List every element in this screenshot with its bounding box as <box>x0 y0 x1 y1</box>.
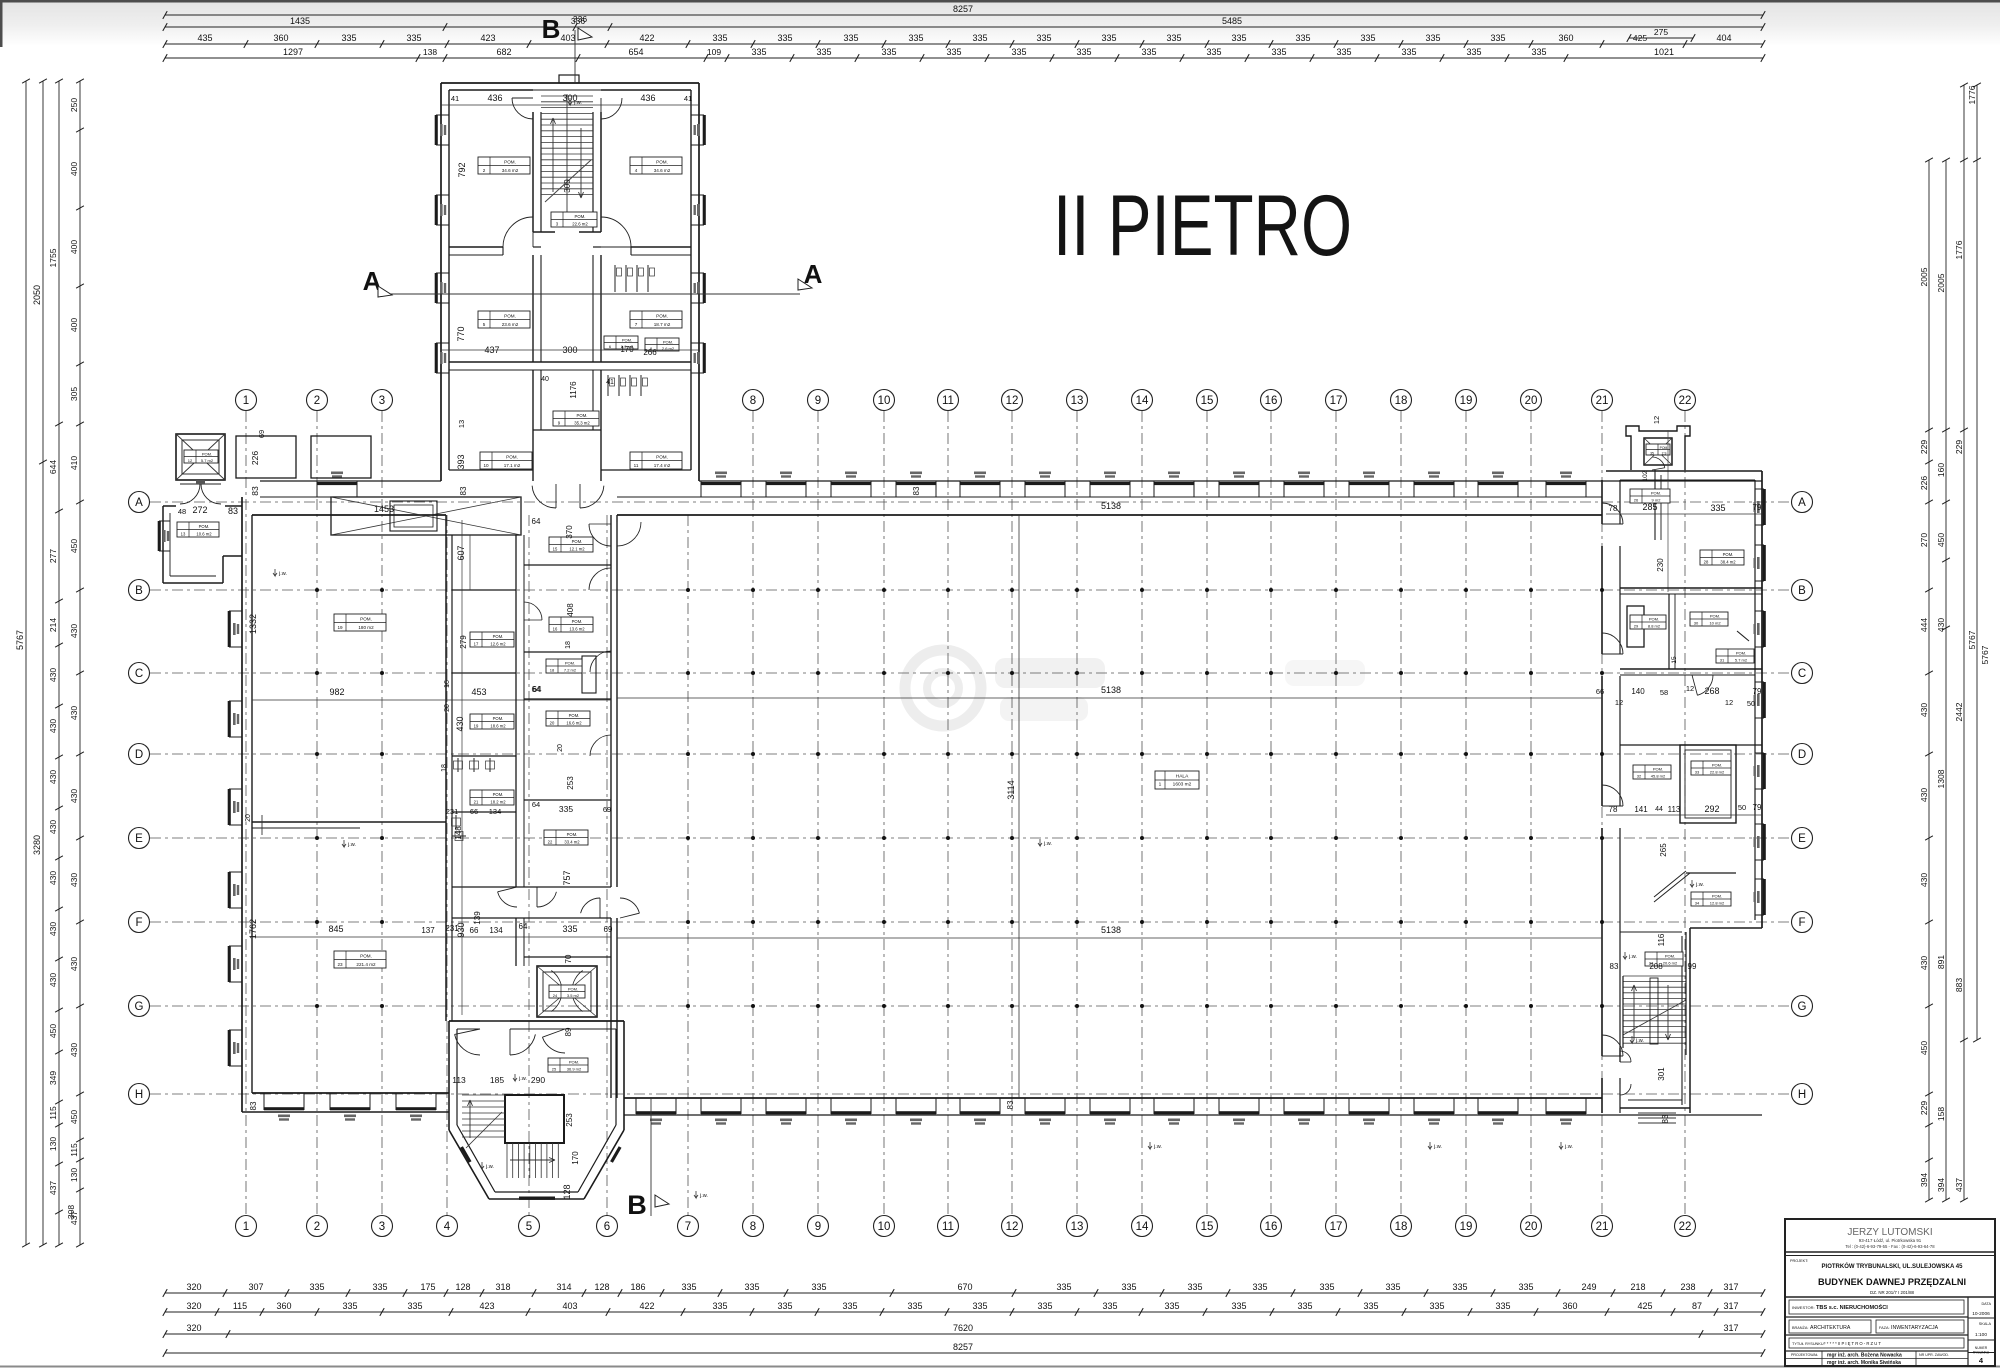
svg-text:1332: 1332 <box>248 614 258 634</box>
svg-text:10.6 m2: 10.6 m2 <box>196 531 212 536</box>
svg-text:POM.: POM. <box>656 159 668 164</box>
svg-text:208: 208 <box>1649 962 1663 971</box>
svg-text:9: 9 <box>815 1221 821 1233</box>
svg-text:64: 64 <box>519 922 528 931</box>
svg-text:229: 229 <box>1954 440 1964 454</box>
svg-text:1021: 1021 <box>1654 47 1674 57</box>
svg-text:430: 430 <box>1919 788 1929 802</box>
svg-text:j.w.: j.w. <box>1043 841 1052 847</box>
svg-text:20: 20 <box>550 720 555 725</box>
svg-text:64: 64 <box>532 800 540 809</box>
svg-text:670: 670 <box>957 1282 972 1292</box>
svg-text:430: 430 <box>1919 956 1929 970</box>
svg-text:5767: 5767 <box>15 630 25 650</box>
svg-text:5.7 m2: 5.7 m2 <box>201 458 214 463</box>
svg-text:450: 450 <box>69 1110 79 1124</box>
svg-text:437: 437 <box>48 1181 58 1195</box>
svg-text:18: 18 <box>550 668 555 673</box>
svg-text:423: 423 <box>480 33 495 43</box>
svg-text:35: 35 <box>1650 451 1654 455</box>
svg-text:214: 214 <box>48 618 58 632</box>
svg-text:430: 430 <box>48 973 58 987</box>
svg-text:400: 400 <box>69 240 79 254</box>
svg-text:1762: 1762 <box>248 919 258 939</box>
svg-text:5138: 5138 <box>1101 501 1121 511</box>
svg-text:300: 300 <box>563 179 572 193</box>
svg-text:22.6 m2: 22.6 m2 <box>572 221 588 226</box>
svg-text:335: 335 <box>1452 1282 1467 1292</box>
svg-text:335: 335 <box>1102 1301 1117 1311</box>
svg-text:17: 17 <box>1330 1221 1343 1233</box>
svg-text:8.8 m2: 8.8 m2 <box>1648 624 1661 629</box>
svg-text:430: 430 <box>48 719 58 733</box>
svg-text:430: 430 <box>69 873 79 887</box>
svg-text:335: 335 <box>1231 33 1246 43</box>
svg-text:137: 137 <box>421 926 435 935</box>
svg-text:12: 12 <box>1686 684 1694 693</box>
svg-text:335: 335 <box>712 33 727 43</box>
svg-text:221.4 m2: 221.4 m2 <box>356 962 376 967</box>
svg-text:12: 12 <box>1615 698 1623 707</box>
svg-text:POM.: POM. <box>493 792 504 797</box>
svg-text:335: 335 <box>309 1282 324 1292</box>
svg-text:335: 335 <box>751 47 766 57</box>
svg-text:B: B <box>627 1190 647 1220</box>
svg-text:175: 175 <box>420 1282 435 1292</box>
svg-text:335: 335 <box>1385 1282 1400 1292</box>
svg-text:437: 437 <box>1954 1178 1964 1192</box>
svg-text:12: 12 <box>188 458 193 463</box>
svg-text:335: 335 <box>1141 47 1156 57</box>
svg-text:C: C <box>135 668 143 680</box>
svg-text:2: 2 <box>483 168 486 173</box>
svg-text:453: 453 <box>471 687 486 697</box>
svg-text:682: 682 <box>496 47 511 57</box>
svg-text:335: 335 <box>341 33 356 43</box>
svg-text:POM.: POM. <box>360 616 372 621</box>
svg-text:436: 436 <box>487 93 502 103</box>
svg-text:20: 20 <box>245 814 252 822</box>
svg-text:20: 20 <box>444 704 451 712</box>
svg-text:335: 335 <box>1495 1301 1510 1311</box>
svg-text:18: 18 <box>565 641 572 649</box>
svg-text:335: 335 <box>1297 1301 1312 1311</box>
svg-text:404: 404 <box>1716 33 1731 43</box>
svg-text:POM.: POM. <box>1651 491 1661 496</box>
svg-text:E: E <box>1798 833 1806 845</box>
svg-text:D: D <box>1798 749 1806 761</box>
svg-text:45.8 m2: 45.8 m2 <box>1651 774 1666 779</box>
svg-text:12.8 m2: 12.8 m2 <box>1710 901 1725 906</box>
svg-text:PIOTRKÓW TRYBUNALSKI, UL.SULEJ: PIOTRKÓW TRYBUNALSKI, UL.SULEJOWSKA 45 <box>1822 1262 1964 1270</box>
svg-text:22: 22 <box>1679 395 1692 407</box>
svg-text:253: 253 <box>566 776 575 790</box>
svg-text:69: 69 <box>603 805 611 814</box>
svg-text:1297: 1297 <box>283 47 303 57</box>
svg-text:PROJEKT:: PROJEKT: <box>1790 1259 1808 1263</box>
svg-text:17.1 m2: 17.1 m2 <box>504 463 521 468</box>
svg-text:83: 83 <box>1006 1100 1015 1109</box>
svg-text:314: 314 <box>556 1282 571 1292</box>
svg-text:891: 891 <box>1936 955 1946 969</box>
svg-text:16: 16 <box>1265 395 1278 407</box>
svg-text:335: 335 <box>1036 33 1051 43</box>
svg-text:14: 14 <box>1136 395 1149 407</box>
svg-text:26: 26 <box>1634 498 1639 503</box>
svg-text:430: 430 <box>69 624 79 638</box>
svg-text:34.6 m2: 34.6 m2 <box>654 168 671 173</box>
svg-text:266: 266 <box>643 348 657 357</box>
svg-text:11: 11 <box>634 463 639 468</box>
svg-text:128: 128 <box>594 1282 609 1292</box>
svg-text:335: 335 <box>1363 1301 1378 1311</box>
svg-text:78: 78 <box>1609 504 1618 513</box>
svg-text:B: B <box>542 14 561 44</box>
svg-text:230: 230 <box>1656 558 1665 572</box>
svg-text:22.8 m2: 22.8 m2 <box>1710 770 1725 775</box>
svg-text:33: 33 <box>1695 770 1700 775</box>
svg-text:18.7 m2: 18.7 m2 <box>654 322 671 327</box>
svg-text:1: 1 <box>243 1221 249 1233</box>
svg-text:POM.: POM. <box>622 337 632 342</box>
svg-text:POM.: POM. <box>202 451 212 456</box>
svg-text:j.w.: j.w. <box>1635 1038 1644 1044</box>
svg-text:ARCHITEKTURA: ARCHITEKTURA <box>1810 1325 1851 1331</box>
svg-text:mgr inż. arch. Monika Siwińska: mgr inż. arch. Monika Siwińska <box>1827 1360 1901 1366</box>
svg-text:12.6 m2: 12.6 m2 <box>490 641 506 646</box>
svg-text:19: 19 <box>1460 395 1473 407</box>
svg-text:5767: 5767 <box>1980 645 1990 664</box>
svg-text:POM.: POM. <box>572 619 583 624</box>
svg-text:128: 128 <box>562 1184 572 1199</box>
svg-text:H: H <box>135 1089 143 1101</box>
svg-text:253: 253 <box>565 1113 574 1127</box>
svg-text:11: 11 <box>942 395 954 407</box>
svg-text:102: 102 <box>1642 470 1649 481</box>
svg-text:POM.: POM. <box>493 716 504 721</box>
svg-text:POM.: POM. <box>1660 446 1669 450</box>
svg-text:450: 450 <box>1919 1041 1929 1055</box>
svg-text:JERZY LUTOMSKI: JERZY LUTOMSKI <box>1847 1227 1932 1238</box>
svg-text:450: 450 <box>48 1024 58 1038</box>
svg-text:249: 249 <box>1581 1282 1596 1292</box>
svg-text:F: F <box>1798 917 1805 929</box>
svg-text:335: 335 <box>1101 33 1116 43</box>
svg-text:335: 335 <box>1187 1282 1202 1292</box>
svg-text:83: 83 <box>250 486 260 496</box>
svg-text:79: 79 <box>1753 503 1762 512</box>
svg-text:2: 2 <box>314 1221 320 1233</box>
svg-text:5: 5 <box>526 1221 532 1233</box>
svg-text:982: 982 <box>329 687 344 697</box>
svg-text:335: 335 <box>972 33 987 43</box>
svg-text:335: 335 <box>1271 47 1286 57</box>
svg-text:15: 15 <box>1201 1221 1214 1233</box>
svg-text:POM.: POM. <box>656 454 668 459</box>
svg-text:G: G <box>1798 1001 1807 1013</box>
svg-text:279: 279 <box>459 635 468 649</box>
svg-text:64: 64 <box>532 685 541 694</box>
svg-text:C: C <box>1798 668 1806 680</box>
svg-text:607: 607 <box>456 545 466 560</box>
svg-text:3.5 m2: 3.5 m2 <box>567 993 580 998</box>
svg-text:17: 17 <box>474 641 479 646</box>
svg-text:POM.: POM. <box>1649 617 1659 622</box>
svg-text:G: G <box>135 1001 144 1013</box>
svg-text:2005: 2005 <box>1919 267 1929 286</box>
svg-text:170: 170 <box>571 1151 580 1165</box>
svg-text:POM.: POM. <box>568 986 578 991</box>
svg-text:134: 134 <box>489 807 502 816</box>
svg-text:335: 335 <box>811 1282 826 1292</box>
svg-text:430: 430 <box>455 716 465 731</box>
svg-text:128: 128 <box>455 1282 470 1292</box>
svg-text:66: 66 <box>470 926 479 935</box>
svg-text:12: 12 <box>1006 395 1019 407</box>
svg-text:393: 393 <box>456 454 466 469</box>
svg-text:400: 400 <box>69 162 79 176</box>
svg-text:2: 2 <box>314 395 320 407</box>
svg-text:TYTUŁ RYSUNKU:: TYTUŁ RYSUNKU: <box>1792 1342 1825 1346</box>
svg-text:8: 8 <box>750 1221 756 1233</box>
svg-text:50: 50 <box>1747 699 1755 708</box>
svg-text:335: 335 <box>1490 33 1505 43</box>
svg-text:BRANŻA:: BRANŻA: <box>1792 1325 1808 1330</box>
svg-text:7: 7 <box>685 1221 691 1233</box>
svg-text:POM.: POM. <box>569 1060 579 1065</box>
svg-text:370: 370 <box>565 525 574 539</box>
svg-text:POM.: POM. <box>1723 552 1734 557</box>
svg-text:4: 4 <box>635 168 638 173</box>
svg-text:5138: 5138 <box>1101 925 1121 935</box>
svg-text:POM.: POM. <box>493 634 504 639</box>
svg-text:Tel : (0-42)-6-93-79-55 -: Tel : (0-42)-6-93-79-55 - Fax : (0-42)-6… <box>1845 1244 1935 1249</box>
svg-text:403: 403 <box>562 1301 577 1311</box>
svg-text:335: 335 <box>1336 47 1351 57</box>
svg-text:RYSUNKU: RYSUNKU <box>1973 1351 1990 1355</box>
svg-text:66: 66 <box>470 807 478 816</box>
svg-text:89: 89 <box>564 1027 573 1036</box>
svg-text:138: 138 <box>423 47 437 57</box>
svg-text:5485: 5485 <box>1222 16 1242 26</box>
svg-text:10-2006: 10-2006 <box>1972 1311 1990 1317</box>
svg-text:83: 83 <box>1661 1114 1670 1123</box>
svg-text:20: 20 <box>1525 1221 1538 1233</box>
svg-text:POM.: POM. <box>663 339 673 344</box>
svg-text:41: 41 <box>451 94 459 103</box>
svg-text:87: 87 <box>1692 1301 1702 1311</box>
svg-text:335: 335 <box>1206 47 1221 57</box>
svg-text:335: 335 <box>1056 1282 1071 1292</box>
svg-text:335: 335 <box>972 1301 987 1311</box>
svg-text:15: 15 <box>553 546 558 551</box>
svg-text:TBS s.c. NIERUCHOMOŚCI: TBS s.c. NIERUCHOMOŚCI <box>1816 1304 1888 1311</box>
svg-text:408: 408 <box>566 603 575 617</box>
svg-text:335: 335 <box>1011 47 1026 57</box>
svg-text:335: 335 <box>1164 1301 1179 1311</box>
svg-text:j.w.: j.w. <box>485 1164 494 1170</box>
svg-text:36.9 m2: 36.9 m2 <box>567 1067 582 1072</box>
svg-text:5767: 5767 <box>1967 630 1977 649</box>
svg-text:335: 335 <box>1319 1282 1334 1292</box>
svg-text:78: 78 <box>1609 805 1618 814</box>
svg-text:* * * * * II P I Ę T R O - R: * * * * * II P I Ę T R O - R Z U T <box>1824 1341 1881 1346</box>
svg-text:335: 335 <box>1429 1301 1444 1311</box>
svg-text:j.w.: j.w. <box>1695 882 1704 888</box>
svg-text:1308: 1308 <box>1936 769 1946 788</box>
svg-text:335: 335 <box>406 33 421 43</box>
svg-text:318: 318 <box>495 1282 510 1292</box>
svg-text:305: 305 <box>69 387 79 401</box>
svg-text:18.6 m2: 18.6 m2 <box>490 723 506 728</box>
svg-text:285: 285 <box>1642 502 1657 512</box>
svg-text:POM.: POM. <box>569 713 580 718</box>
svg-text:335: 335 <box>908 33 923 43</box>
svg-text:930: 930 <box>456 922 466 937</box>
svg-text:277: 277 <box>48 549 58 563</box>
svg-text:33.4 m2: 33.4 m2 <box>564 839 580 844</box>
svg-text:430: 430 <box>1936 618 1946 632</box>
svg-text:335: 335 <box>1518 1282 1533 1292</box>
svg-text:113: 113 <box>1668 805 1681 814</box>
svg-text:15: 15 <box>1201 395 1214 407</box>
svg-text:10: 10 <box>878 395 891 407</box>
svg-text:POM.: POM. <box>504 159 516 164</box>
svg-text:93-417 Łódź, ul. Piotrkowska: 93-417 Łódź, ul. Piotrkowska 91 <box>1859 1238 1922 1243</box>
svg-text:20.6 m2: 20.6 m2 <box>1663 961 1678 966</box>
svg-text:349: 349 <box>48 1071 58 1085</box>
svg-text:3280: 3280 <box>32 835 42 855</box>
svg-text:425: 425 <box>1637 1301 1652 1311</box>
svg-text:FAZA:: FAZA: <box>1879 1326 1890 1330</box>
svg-text:336: 336 <box>573 14 587 24</box>
svg-text:450: 450 <box>1936 533 1946 547</box>
svg-text:436: 436 <box>640 93 655 103</box>
svg-text:2050: 2050 <box>32 285 42 305</box>
svg-text:335: 335 <box>1037 1301 1052 1311</box>
svg-text:18: 18 <box>1395 395 1408 407</box>
svg-text:845: 845 <box>328 924 343 934</box>
svg-text:14: 14 <box>1136 1221 1149 1233</box>
svg-text:83: 83 <box>459 486 468 495</box>
svg-text:21: 21 <box>474 799 479 804</box>
svg-text:335: 335 <box>681 1282 696 1292</box>
svg-text:19: 19 <box>337 625 343 630</box>
svg-text:31: 31 <box>1720 658 1725 663</box>
svg-text:99: 99 <box>1688 962 1697 971</box>
svg-text:79: 79 <box>1753 687 1762 696</box>
svg-text:6: 6 <box>604 1221 610 1233</box>
svg-text:644: 644 <box>48 460 58 474</box>
svg-text:8257: 8257 <box>953 4 973 14</box>
svg-text:3114: 3114 <box>1006 780 1016 799</box>
svg-text:218: 218 <box>1630 1282 1645 1292</box>
svg-text:335: 335 <box>1121 1282 1136 1292</box>
svg-text:444: 444 <box>1919 618 1929 632</box>
svg-text:12.1 m2: 12.1 m2 <box>569 546 585 551</box>
svg-text:16: 16 <box>444 680 451 688</box>
svg-text:j.w.: j.w. <box>1433 1144 1442 1150</box>
svg-text:12: 12 <box>1652 416 1661 424</box>
svg-text:13: 13 <box>457 420 466 428</box>
svg-text:317: 317 <box>1723 1323 1738 1333</box>
svg-text:j.w.: j.w. <box>699 1193 708 1199</box>
svg-text:335: 335 <box>1710 503 1725 513</box>
svg-text:POM.: POM. <box>1653 767 1663 772</box>
svg-text:1776: 1776 <box>1954 240 1964 259</box>
svg-text:430: 430 <box>48 668 58 682</box>
svg-text:335: 335 <box>1252 1282 1267 1292</box>
svg-text:139: 139 <box>473 911 482 925</box>
svg-text:13: 13 <box>1071 395 1084 407</box>
svg-text:360: 360 <box>1562 1301 1577 1311</box>
svg-text:POM.: POM. <box>575 214 586 219</box>
svg-text:mgr inż. arch. Bożena Nowacka: mgr inż. arch. Bożena Nowacka <box>1827 1353 1902 1359</box>
svg-text:275: 275 <box>1654 27 1668 37</box>
svg-text:21: 21 <box>1596 1221 1609 1233</box>
svg-text:3: 3 <box>379 1221 385 1233</box>
svg-text:17.4 m2: 17.4 m2 <box>654 463 671 468</box>
svg-text:430: 430 <box>48 770 58 784</box>
svg-text:430: 430 <box>69 957 79 971</box>
svg-text:450: 450 <box>69 539 79 553</box>
svg-text:3: 3 <box>379 395 385 407</box>
svg-text:POM.: POM. <box>1665 954 1675 959</box>
svg-text:423: 423 <box>479 1301 494 1311</box>
svg-text:226: 226 <box>250 451 260 465</box>
svg-text:F: F <box>135 917 142 929</box>
svg-text:160: 160 <box>1936 463 1946 477</box>
svg-text:9: 9 <box>815 395 821 407</box>
svg-text:83: 83 <box>249 1101 258 1110</box>
svg-text:335: 335 <box>1401 47 1416 57</box>
svg-text:185: 185 <box>490 1075 504 1085</box>
svg-text:320: 320 <box>186 1282 201 1292</box>
svg-text:360: 360 <box>276 1301 291 1311</box>
svg-text:158: 158 <box>1936 1107 1946 1121</box>
svg-text:BUDYNEK DAWNEJ PRZĘDZALNI: BUDYNEK DAWNEJ PRZĘDZALNI <box>1818 1277 1966 1287</box>
svg-text:58: 58 <box>1660 688 1668 697</box>
svg-text:115: 115 <box>48 1106 58 1120</box>
svg-text:238: 238 <box>1680 1282 1695 1292</box>
svg-text:317: 317 <box>1723 1282 1738 1292</box>
svg-text:POM.: POM. <box>506 454 518 459</box>
svg-text:30: 30 <box>1694 621 1699 626</box>
svg-text:335: 335 <box>842 1301 857 1311</box>
svg-text:15: 15 <box>1671 656 1678 664</box>
svg-text:j.w.: j.w. <box>1153 1144 1162 1150</box>
svg-text:21: 21 <box>1596 395 1609 407</box>
svg-text:113: 113 <box>452 1075 466 1085</box>
svg-text:50: 50 <box>1738 803 1746 812</box>
svg-text:HALA: HALA <box>1176 774 1189 780</box>
svg-text:335: 335 <box>1466 47 1481 57</box>
svg-text:430: 430 <box>1919 703 1929 717</box>
svg-text:POM.: POM. <box>360 953 372 958</box>
svg-text:POM.: POM. <box>577 413 588 418</box>
svg-text:B: B <box>135 585 143 597</box>
svg-text:180 m2: 180 m2 <box>358 625 374 630</box>
svg-text:335: 335 <box>1295 33 1310 43</box>
svg-text:10: 10 <box>483 463 489 468</box>
svg-text:A: A <box>135 497 143 509</box>
svg-text:140: 140 <box>1631 687 1645 696</box>
svg-text:13: 13 <box>1071 1221 1084 1233</box>
svg-text:38.4 m2: 38.4 m2 <box>1720 559 1736 564</box>
svg-text:A: A <box>1798 497 1806 509</box>
svg-text:1755: 1755 <box>48 248 58 267</box>
svg-text:48: 48 <box>178 507 186 516</box>
